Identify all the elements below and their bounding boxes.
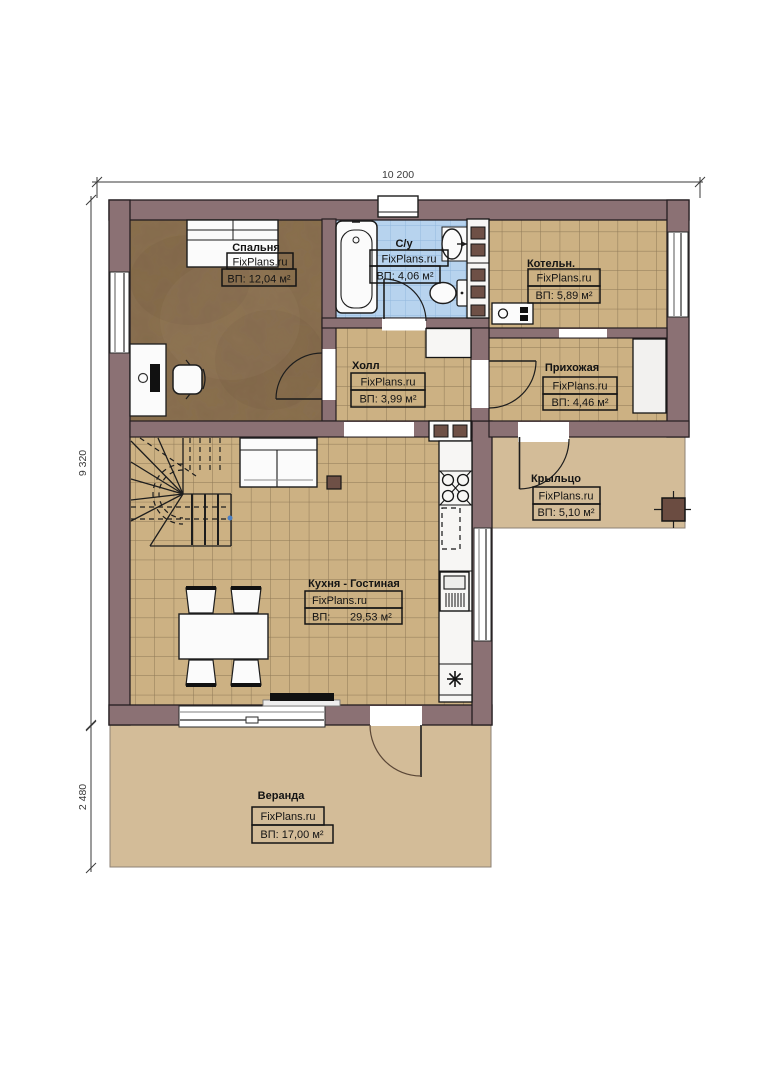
- svg-text:FixPlans.ru: FixPlans.ru: [536, 273, 591, 285]
- svg-text:FixPlans.ru: FixPlans.ru: [232, 257, 287, 269]
- svg-text:ВП: 3,99 м²: ВП: 3,99 м²: [359, 394, 416, 406]
- svg-text:FixPlans.ru: FixPlans.ru: [312, 595, 367, 607]
- svg-text:9 320: 9 320: [77, 450, 89, 476]
- svg-text:Веранда: Веранда: [258, 790, 306, 802]
- svg-text:FixPlans.ru: FixPlans.ru: [260, 811, 315, 823]
- svg-text:ВП:: ВП:: [312, 612, 330, 624]
- svg-text:FixPlans.ru: FixPlans.ru: [381, 254, 436, 266]
- svg-text:ВП: 4,46 м²: ВП: 4,46 м²: [551, 397, 608, 409]
- svg-text:Прихожая: Прихожая: [545, 362, 599, 374]
- svg-text:FixPlans.ru: FixPlans.ru: [538, 491, 593, 503]
- svg-text:ВП: 5,10 м²: ВП: 5,10 м²: [537, 507, 594, 519]
- svg-text:ВП: 17,00 м²: ВП: 17,00 м²: [260, 829, 324, 841]
- svg-text:ВП: 12,04 м²: ВП: 12,04 м²: [227, 274, 291, 286]
- svg-text:ВП: 4,06 м²: ВП: 4,06 м²: [376, 271, 433, 283]
- svg-text:ВП: 5,89 м²: ВП: 5,89 м²: [535, 290, 592, 302]
- svg-text:Крыльцо: Крыльцо: [531, 473, 581, 485]
- svg-text:FixPlans.ru: FixPlans.ru: [552, 381, 607, 393]
- svg-text:29,53 м²: 29,53 м²: [350, 612, 392, 624]
- svg-text:Спальня: Спальня: [232, 242, 280, 254]
- svg-text:10 200: 10 200: [382, 169, 414, 181]
- svg-text:FixPlans.ru: FixPlans.ru: [360, 377, 415, 389]
- svg-text:Холл: Холл: [352, 360, 380, 372]
- svg-text:С/у: С/у: [395, 238, 413, 250]
- svg-text:2 480: 2 480: [77, 784, 89, 810]
- svg-text:Котельн.: Котельн.: [527, 258, 575, 270]
- svg-text:Кухня - Гостиная: Кухня - Гостиная: [308, 578, 400, 590]
